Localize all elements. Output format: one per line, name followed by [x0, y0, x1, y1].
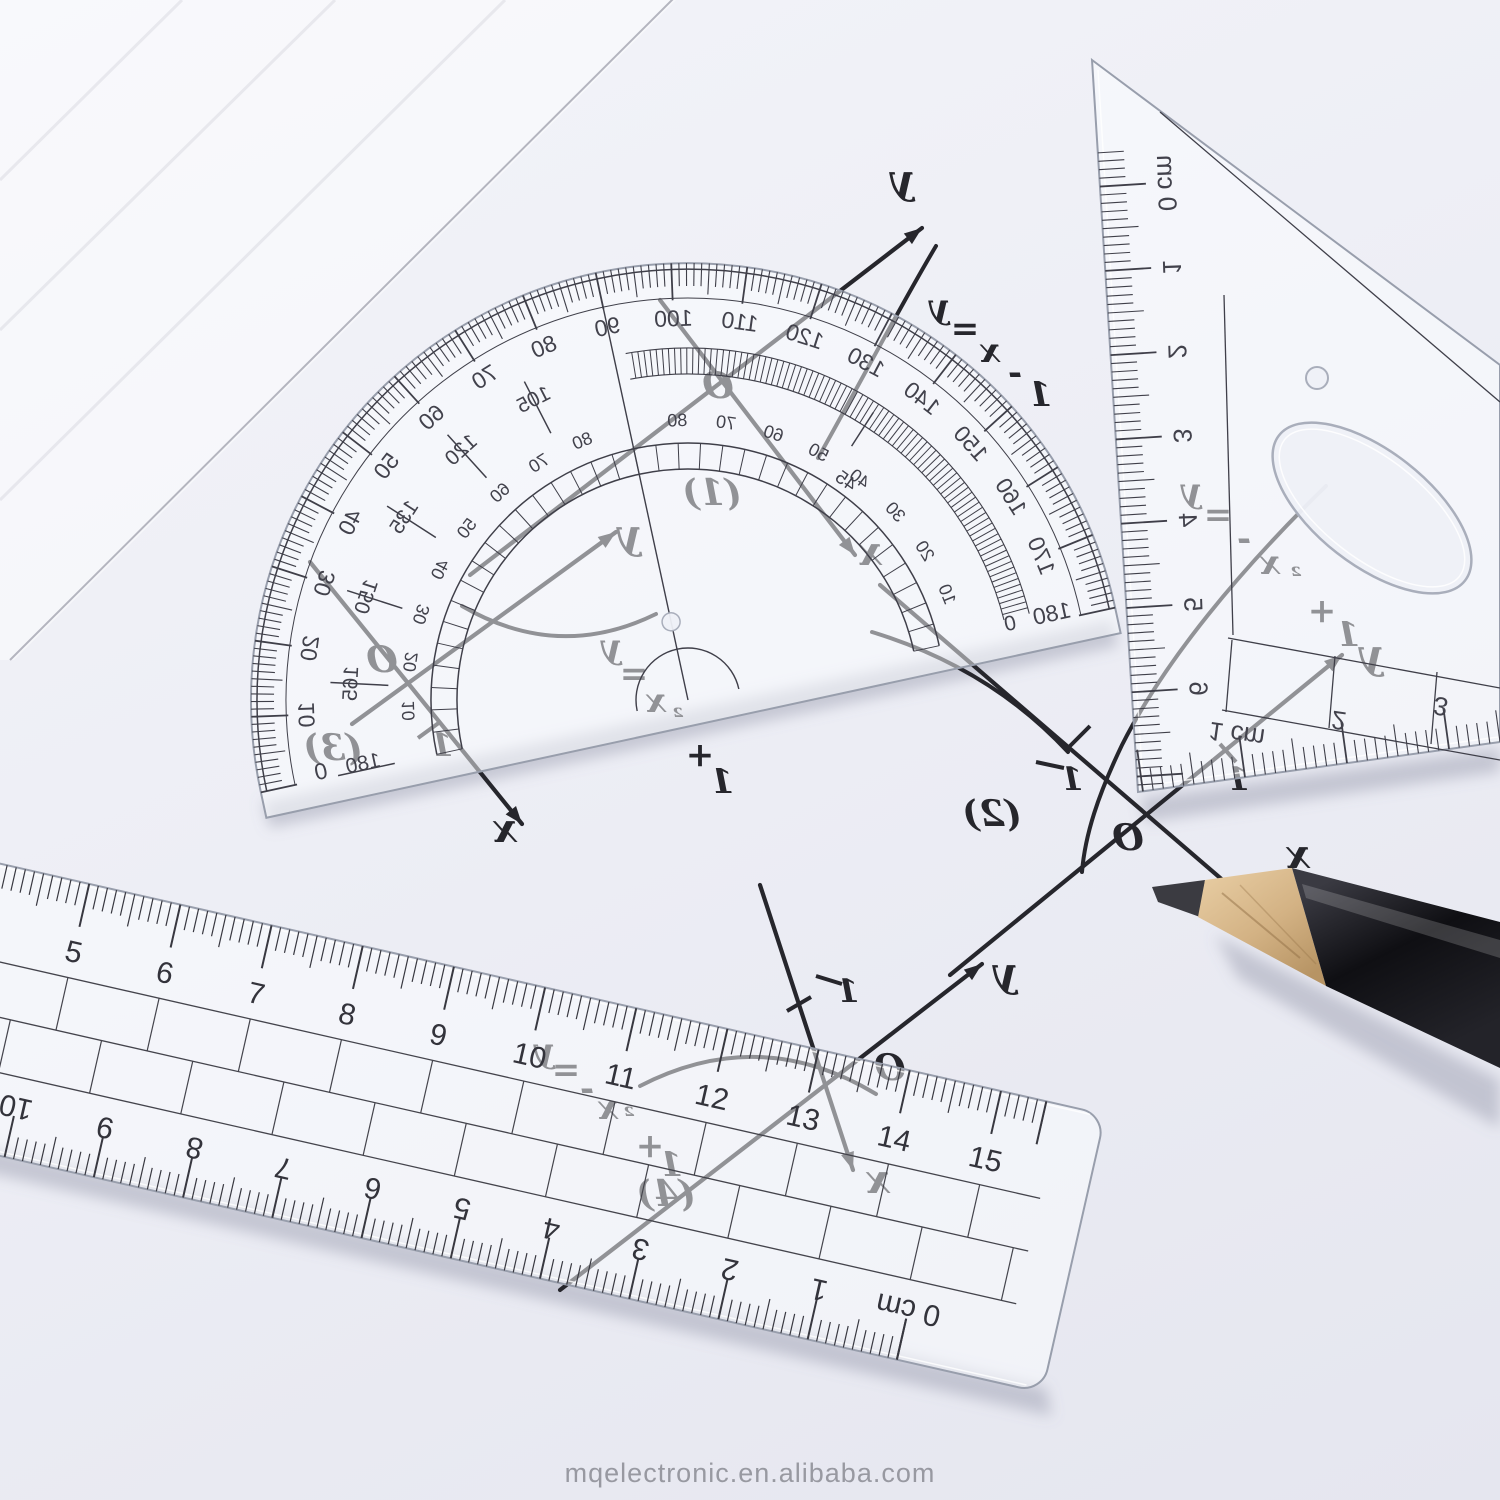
- product-photo-scene: yxO(1)y=x-1yxO(2)y=-x²+111yxO(3)y=x²+11y…: [0, 0, 1500, 1500]
- protractor-number: 90: [592, 311, 623, 342]
- equation-char: y: [928, 287, 951, 327]
- protractor-number: 20: [399, 651, 422, 674]
- protractor-number: 10: [398, 700, 419, 721]
- pencil-lead: [1152, 880, 1205, 917]
- protractor-number: 165: [339, 665, 364, 701]
- protractor-number: 10: [293, 701, 320, 728]
- triangle-side-number: 6: [1183, 681, 1213, 697]
- set-square-triangle: 0 cm1234561 cm23: [1092, 60, 1500, 792]
- triangle-side-number: 0 cm: [1151, 154, 1183, 211]
- handwritten-label: y: [889, 156, 916, 203]
- handwritten-label: 1: [1061, 760, 1083, 798]
- equation-char: 1: [710, 762, 734, 802]
- protractor-number: 20: [295, 634, 324, 663]
- protractor-number: 70: [715, 411, 738, 434]
- triangle-side-number: 2: [1162, 344, 1192, 360]
- handwritten-label: 1: [837, 972, 859, 1010]
- handwritten-label: (2): [962, 793, 1021, 835]
- photo-artwork: yxO(1)y=x-1yxO(2)y=-x²+111yxO(3)y=x²+11y…: [0, 0, 1500, 1500]
- handwritten-label: y: [992, 949, 1019, 996]
- protractor-number: 80: [667, 410, 688, 431]
- straight-ruler: 56789101112131415109876543210 cm: [0, 850, 1105, 1393]
- triangle-side-number: 5: [1178, 597, 1208, 613]
- handwritten-label: x: [492, 805, 518, 852]
- equation-char: -: [1008, 353, 1022, 393]
- equation-char: 1: [1028, 375, 1052, 415]
- pencil: [1152, 868, 1500, 1068]
- watermark: mqelectronic.en.alibaba.com: [565, 1458, 936, 1489]
- protractor-number: 110: [720, 306, 760, 337]
- triangle-side-number: 1: [1157, 259, 1187, 275]
- equation-char: x: [979, 331, 1001, 371]
- equation-char: =: [951, 309, 980, 349]
- triangle-side-number: 3: [1167, 428, 1197, 444]
- handwritten-label: O: [1112, 817, 1144, 859]
- equation-char: +: [686, 735, 715, 775]
- triangle-side-number: 4: [1173, 512, 1203, 528]
- protractor-number: 100: [654, 305, 693, 332]
